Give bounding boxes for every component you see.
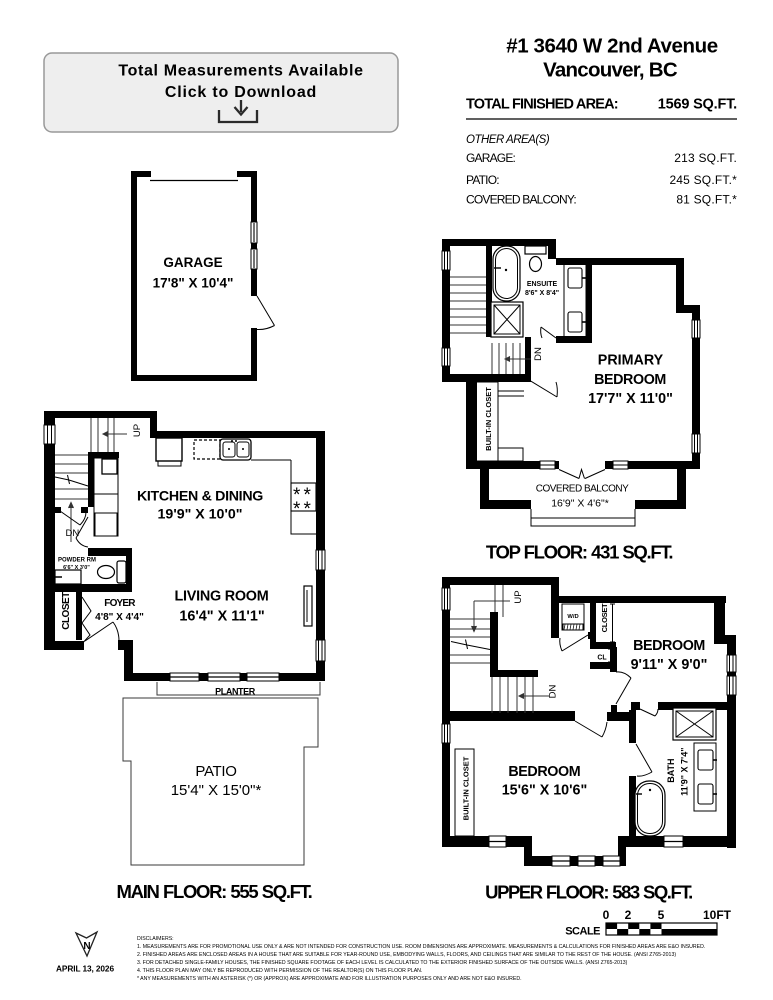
svg-text:BEDROOM: BEDROOM	[633, 638, 705, 654]
svg-text:MAIN FLOOR: 555 SQ.FT.: MAIN FLOOR: 555 SQ.FT.	[117, 881, 312, 902]
svg-text:UPPER FLOOR: 583 SQ.FT.: UPPER FLOOR: 583 SQ.FT.	[485, 882, 692, 903]
svg-text:*: *	[304, 499, 312, 520]
svg-text:5: 5	[658, 908, 665, 922]
svg-text:COVERED BALCONY:: COVERED BALCONY:	[466, 193, 576, 207]
svg-text:DN: DN	[533, 347, 544, 361]
svg-text:4'8" X 4'4": 4'8" X 4'4"	[95, 612, 144, 623]
svg-text:4. THIS FLOOR PLAN MAY ONLY BE: 4. THIS FLOOR PLAN MAY ONLY BE REPRODUCE…	[137, 968, 422, 974]
svg-text:3. FOR DETACHED SINGLE-FAMILY: 3. FOR DETACHED SINGLE-FAMILY HOUSES, TH…	[137, 960, 628, 966]
svg-text:OTHER AREA(S): OTHER AREA(S)	[466, 134, 550, 146]
svg-text:245 SQ.FT.*: 245 SQ.FT.*	[669, 173, 737, 187]
svg-text:ENSUITE: ENSUITE	[527, 281, 558, 288]
svg-text:KITCHEN & DINING: KITCHEN & DINING	[137, 489, 263, 505]
svg-text:11'9" X 7'4": 11'9" X 7'4"	[680, 748, 690, 796]
svg-text:CLOSET: CLOSET	[600, 603, 609, 632]
svg-text:BEDROOM: BEDROOM	[594, 372, 666, 388]
svg-text:* ANY MEASUREMENTS WITH AN AST: * ANY MEASUREMENTS WITH AN ASTERISK (*) …	[137, 976, 522, 982]
svg-text:15'4" X 15'0"*: 15'4" X 15'0"*	[171, 782, 262, 799]
svg-text:17'8" X 10'4": 17'8" X 10'4"	[153, 276, 234, 291]
svg-text:PATIO: PATIO	[195, 763, 236, 780]
svg-text:BATH: BATH	[666, 758, 676, 782]
svg-text:10FT: 10FT	[703, 908, 732, 922]
svg-text:POWDER RM: POWDER RM	[58, 558, 96, 564]
svg-text:2: 2	[625, 908, 632, 922]
svg-text:APRIL 13, 2026: APRIL 13, 2026	[56, 964, 114, 974]
svg-text:UP: UP	[513, 590, 524, 603]
svg-text:8'6" X 8'4": 8'6" X 8'4"	[525, 290, 559, 297]
svg-text:COVERED BALCONY: COVERED BALCONY	[536, 484, 629, 495]
svg-text:GARAGE: GARAGE	[163, 255, 222, 270]
svg-text:TOTAL FINISHED AREA:: TOTAL FINISHED AREA:	[466, 97, 618, 113]
svg-text:9'11" X 9'0": 9'11" X 9'0"	[631, 657, 708, 673]
svg-text:6'6" X 3'0": 6'6" X 3'0"	[63, 565, 90, 571]
svg-text:16'9" X 4'6"*: 16'9" X 4'6"*	[551, 498, 609, 510]
svg-text:BUILT-IN CLOSET: BUILT-IN CLOSET	[462, 756, 471, 820]
svg-text:213 SQ.FT.: 213 SQ.FT.	[674, 151, 737, 165]
svg-text:DN: DN	[66, 528, 80, 539]
svg-text:CL: CL	[597, 655, 607, 662]
svg-text:17'7" X 11'0": 17'7" X 11'0"	[588, 391, 673, 407]
svg-text:Total Measurements Available: Total Measurements Available	[118, 63, 363, 80]
svg-text:BEDROOM: BEDROOM	[508, 764, 580, 780]
svg-text:TOP FLOOR: 431 SQ.FT.: TOP FLOOR: 431 SQ.FT.	[486, 542, 673, 563]
svg-text:Click to Download: Click to Download	[165, 84, 317, 101]
svg-text:15'6" X 10'6": 15'6" X 10'6"	[502, 783, 588, 799]
svg-text:*: *	[293, 499, 301, 520]
svg-text:Vancouver, BC: Vancouver, BC	[543, 59, 678, 82]
svg-text:UP: UP	[132, 424, 143, 437]
svg-text:DN: DN	[548, 685, 559, 699]
svg-text:2. FINISHED AREAS ARE ENCLOSED: 2. FINISHED AREAS ARE ENCLOSED AREAS IN …	[137, 952, 676, 958]
svg-text:1569 SQ.FT.: 1569 SQ.FT.	[658, 97, 737, 113]
svg-text:#1 3640 W 2nd Avenue: #1 3640 W 2nd Avenue	[506, 35, 718, 58]
svg-text:PATIO:: PATIO:	[466, 173, 499, 187]
svg-text:PLANTER: PLANTER	[215, 687, 256, 697]
svg-text:PRIMARY: PRIMARY	[598, 353, 664, 369]
svg-text:DISCLAIMERS:: DISCLAIMERS:	[137, 936, 174, 942]
svg-text:0: 0	[603, 908, 610, 922]
svg-text:LIVING ROOM: LIVING ROOM	[175, 589, 269, 605]
svg-text:81 SQ.FT.*: 81 SQ.FT.*	[676, 193, 737, 207]
svg-text:1. MEASUREMENTS ARE FOR PROMOT: 1. MEASUREMENTS ARE FOR PROMOTIONAL USE …	[137, 944, 705, 950]
svg-text:BUILT-IN CLOSET: BUILT-IN CLOSET	[484, 387, 493, 451]
svg-text:19'9" X 10'0": 19'9" X 10'0"	[158, 507, 243, 523]
svg-text:SCALE: SCALE	[565, 926, 600, 938]
svg-text:FOYER: FOYER	[104, 598, 136, 609]
svg-text:16'4" X 11'1": 16'4" X 11'1"	[179, 609, 264, 625]
svg-text:GARAGE:: GARAGE:	[466, 151, 516, 165]
svg-text:W/D: W/D	[567, 614, 578, 620]
svg-text:CLOSET: CLOSET	[61, 592, 72, 630]
svg-text:N: N	[83, 941, 90, 952]
